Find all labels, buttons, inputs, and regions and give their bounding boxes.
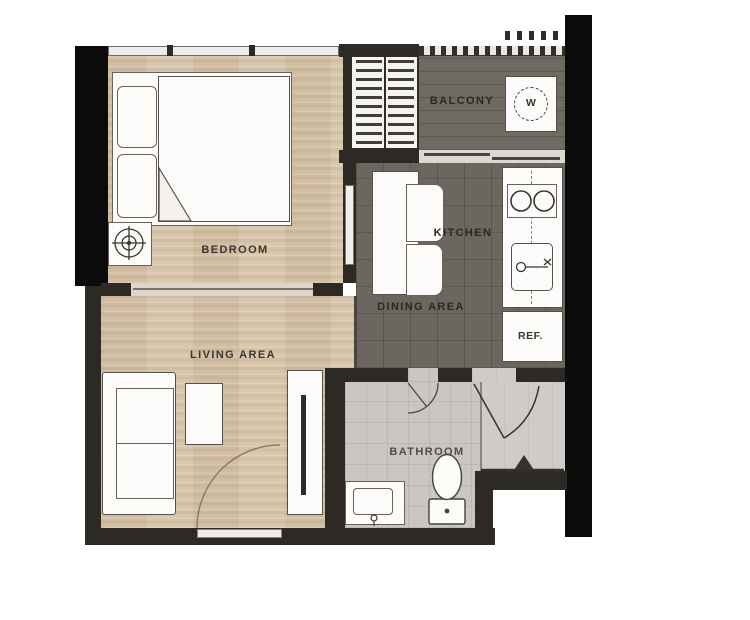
entrance-arrow-icon	[481, 455, 564, 470]
dining-area-label: DINING AREA	[377, 301, 465, 313]
living-door-swing-arc	[197, 445, 280, 528]
kitchen-sink-icon	[517, 259, 552, 272]
toilet-icon	[429, 455, 465, 525]
bathroom-door-swing-arc	[408, 383, 438, 413]
entrance-door-swing-arc	[474, 384, 539, 438]
plan-symbols-overlay	[0, 0, 750, 620]
bathroom-sink-icon	[371, 515, 377, 526]
bedroom-label: BEDROOM	[201, 244, 268, 256]
kitchen-label: KITCHEN	[434, 227, 493, 239]
bed-sheet-fold	[159, 168, 191, 221]
stove-burners-icon	[511, 191, 554, 211]
bathroom-label: BATHROOM	[389, 446, 464, 458]
balcony-label: BALCONY	[430, 95, 494, 107]
living-area-label: LIVING AREA	[190, 349, 276, 361]
floor-plan: W REF.	[0, 0, 750, 620]
ceiling-fan-icon	[112, 226, 146, 260]
